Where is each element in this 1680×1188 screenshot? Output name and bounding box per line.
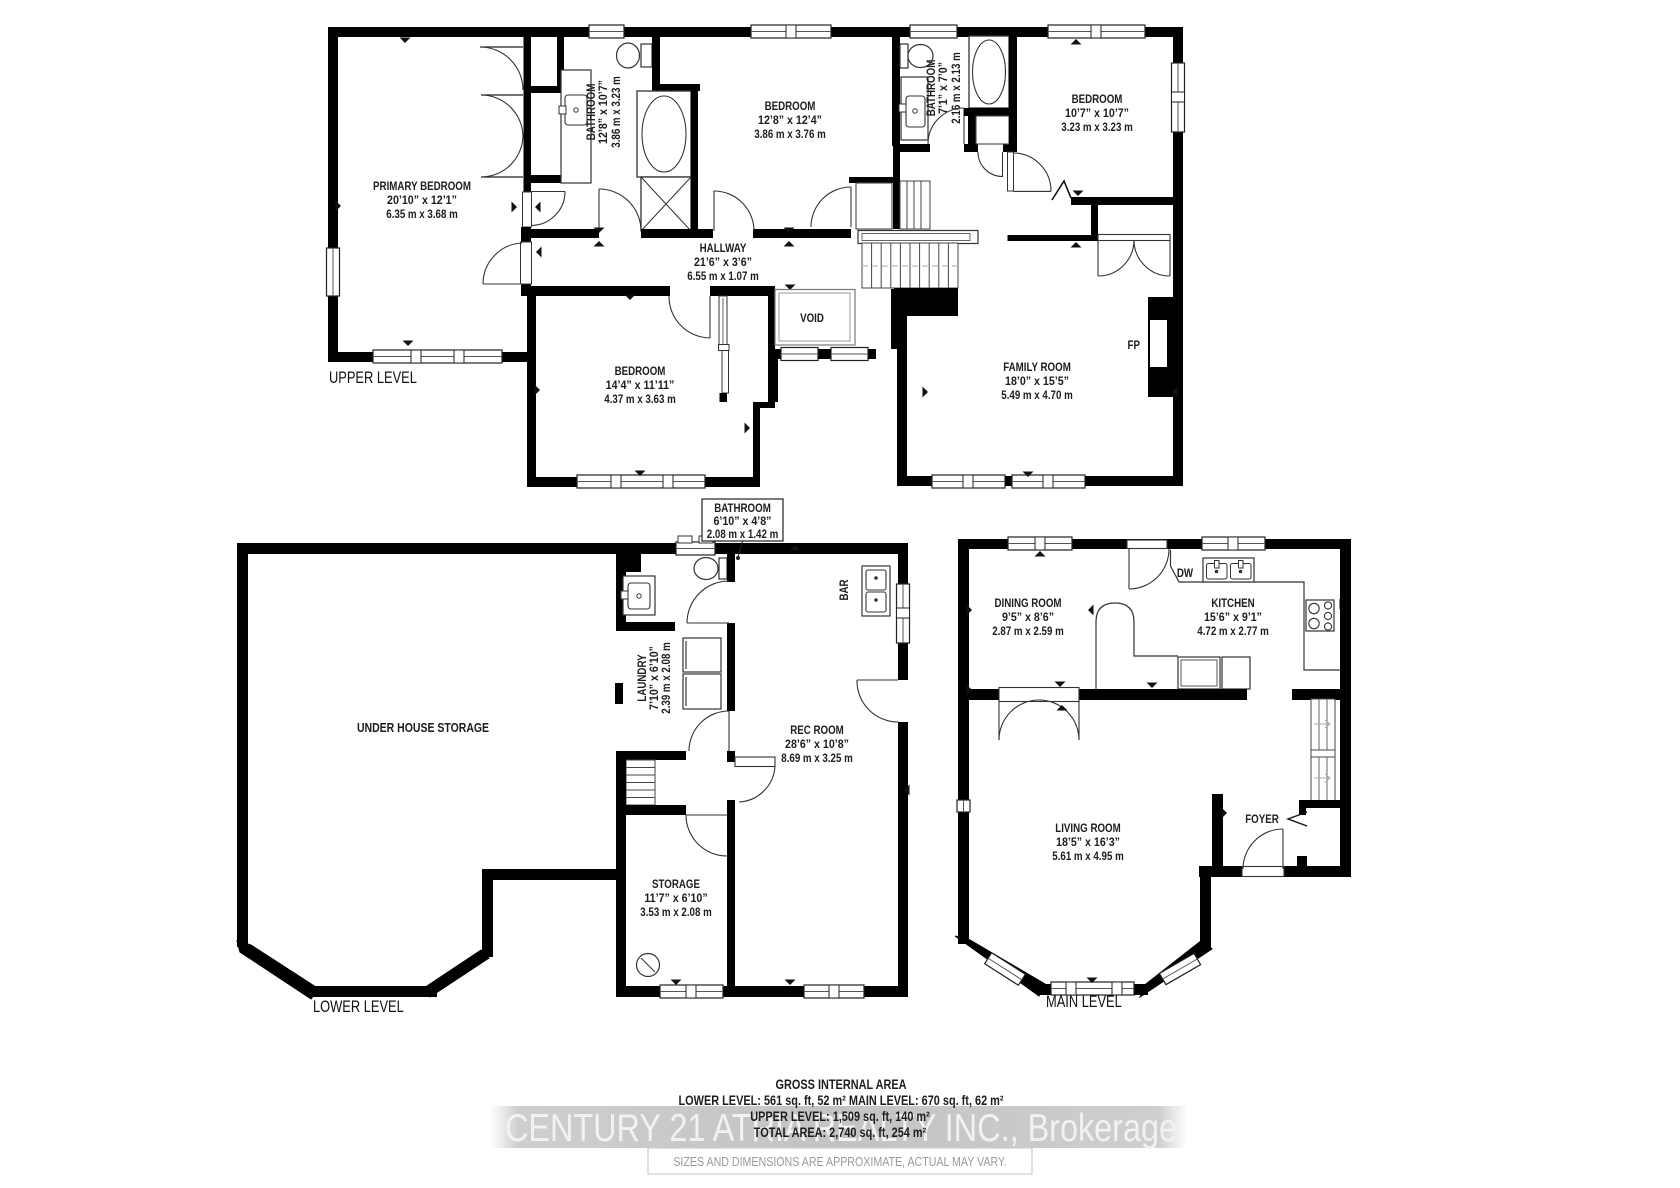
svg-text:BATHROOM: BATHROOM (585, 84, 598, 141)
svg-text:UNDER HOUSE STORAGE: UNDER HOUSE STORAGE (357, 722, 489, 735)
svg-text:10’7” x 10’7”: 10’7” x 10’7” (1065, 108, 1129, 120)
svg-text:REC ROOM: REC ROOM (790, 724, 844, 737)
svg-text:FAMILY ROOM: FAMILY ROOM (1003, 361, 1071, 374)
svg-text:2.16 m x 2.13 m: 2.16 m x 2.13 m (950, 52, 963, 123)
svg-text:FOYER: FOYER (1245, 813, 1279, 826)
svg-text:3.86 m x 3.76 m: 3.86 m x 3.76 m (754, 128, 825, 141)
svg-text:20’10” x 12’1”: 20’10” x 12’1” (387, 195, 457, 207)
svg-text:3.23 m x 3.23 m: 3.23 m x 3.23 m (1061, 121, 1132, 134)
svg-text:BEDROOM: BEDROOM (615, 365, 666, 378)
svg-text:4.37 m x 3.63 m: 4.37 m x 3.63 m (604, 393, 675, 406)
svg-text:BAR: BAR (838, 579, 851, 600)
svg-text:5.61 m x 4.95 m: 5.61 m x 4.95 m (1052, 850, 1123, 863)
svg-text:TOTAL AREA: 2,740 sq. ft, 254: TOTAL AREA: 2,740 sq. ft, 254 m² (754, 1125, 926, 1141)
svg-text:3.53 m x 2.08 m: 3.53 m x 2.08 m (640, 906, 711, 919)
svg-text:3.86 m x 3.23 m: 3.86 m x 3.23 m (610, 76, 623, 147)
svg-text:2.87 m x 2.59 m: 2.87 m x 2.59 m (992, 625, 1063, 638)
svg-text:21’6” x 3’6”: 21’6” x 3’6” (694, 257, 752, 269)
svg-text:6.55 m x 1.07 m: 6.55 m x 1.07 m (687, 270, 758, 283)
svg-text:12’8” x 12’4”: 12’8” x 12’4” (758, 115, 822, 127)
svg-text:28’6” x 10’8”: 28’6” x 10’8” (785, 739, 849, 751)
svg-text:PRIMARY BEDROOM: PRIMARY BEDROOM (373, 180, 471, 193)
svg-text:UPPER LEVEL: 1,509 sq. ft, 140: UPPER LEVEL: 1,509 sq. ft, 140 m² (750, 1109, 930, 1125)
svg-text:GROSS INTERNAL AREA: GROSS INTERNAL AREA (776, 1077, 907, 1093)
svg-text:HALLWAY: HALLWAY (700, 242, 747, 255)
svg-text:UPPER LEVEL: UPPER LEVEL (329, 370, 417, 388)
svg-text:5.49 m x 4.70 m: 5.49 m x 4.70 m (1001, 389, 1072, 402)
svg-text:4.72 m x 2.77 m: 4.72 m x 2.77 m (1197, 625, 1268, 638)
svg-text:BEDROOM: BEDROOM (765, 100, 816, 113)
svg-text:2.39 m x 2.08 m: 2.39 m x 2.08 m (660, 642, 673, 713)
svg-text:7’10” x 6’10”: 7’10” x 6’10” (649, 646, 661, 710)
svg-text:7’1” x 7’0”: 7’1” x 7’0” (938, 62, 950, 114)
svg-text:14’4” x 11’11”: 14’4” x 11’11” (606, 380, 675, 392)
svg-text:BEDROOM: BEDROOM (1072, 93, 1123, 106)
svg-text:SIZES AND DIMENSIONS ARE APPRO: SIZES AND DIMENSIONS ARE APPROXIMATE, AC… (673, 1154, 1006, 1169)
svg-text:LOWER LEVEL: 561 sq. ft, 52 m²: LOWER LEVEL: 561 sq. ft, 52 m² MAIN LEVE… (678, 1093, 1003, 1109)
svg-text:6.35 m x 3.68 m: 6.35 m x 3.68 m (386, 208, 457, 221)
svg-text:STORAGE: STORAGE (652, 878, 700, 891)
svg-text:LOWER LEVEL: LOWER LEVEL (313, 999, 404, 1017)
svg-text:18’0” x 15’5”: 18’0” x 15’5” (1005, 376, 1069, 388)
svg-text:KITCHEN: KITCHEN (1211, 597, 1255, 610)
svg-text:BATHROOM: BATHROOM (714, 502, 771, 515)
svg-text:FP: FP (1128, 339, 1140, 352)
svg-text:12’8” x 10’7”: 12’8” x 10’7” (598, 80, 610, 144)
svg-text:DINING ROOM: DINING ROOM (994, 597, 1061, 610)
svg-text:LIVING ROOM: LIVING ROOM (1055, 822, 1121, 835)
svg-text:DW: DW (1177, 567, 1194, 580)
svg-text:LAUNDRY: LAUNDRY (636, 654, 649, 701)
svg-text:9’5” x 8’6”: 9’5” x 8’6” (1002, 612, 1054, 624)
svg-text:18’5” x 16’3”: 18’5” x 16’3” (1056, 837, 1120, 849)
svg-text:15’6” x 9’1”: 15’6” x 9’1” (1204, 612, 1262, 624)
svg-text:BATHROOM: BATHROOM (925, 60, 938, 117)
svg-text:6’10” x 4’8”: 6’10” x 4’8” (713, 516, 771, 528)
svg-text:VOID: VOID (800, 312, 824, 325)
svg-text:11’7” x 6’10”: 11’7” x 6’10” (644, 893, 707, 905)
svg-text:2.08 m x 1.42 m: 2.08 m x 1.42 m (707, 528, 778, 541)
svg-text:8.69 m x 3.25 m: 8.69 m x 3.25 m (781, 752, 852, 765)
svg-text:MAIN LEVEL: MAIN LEVEL (1046, 994, 1122, 1012)
